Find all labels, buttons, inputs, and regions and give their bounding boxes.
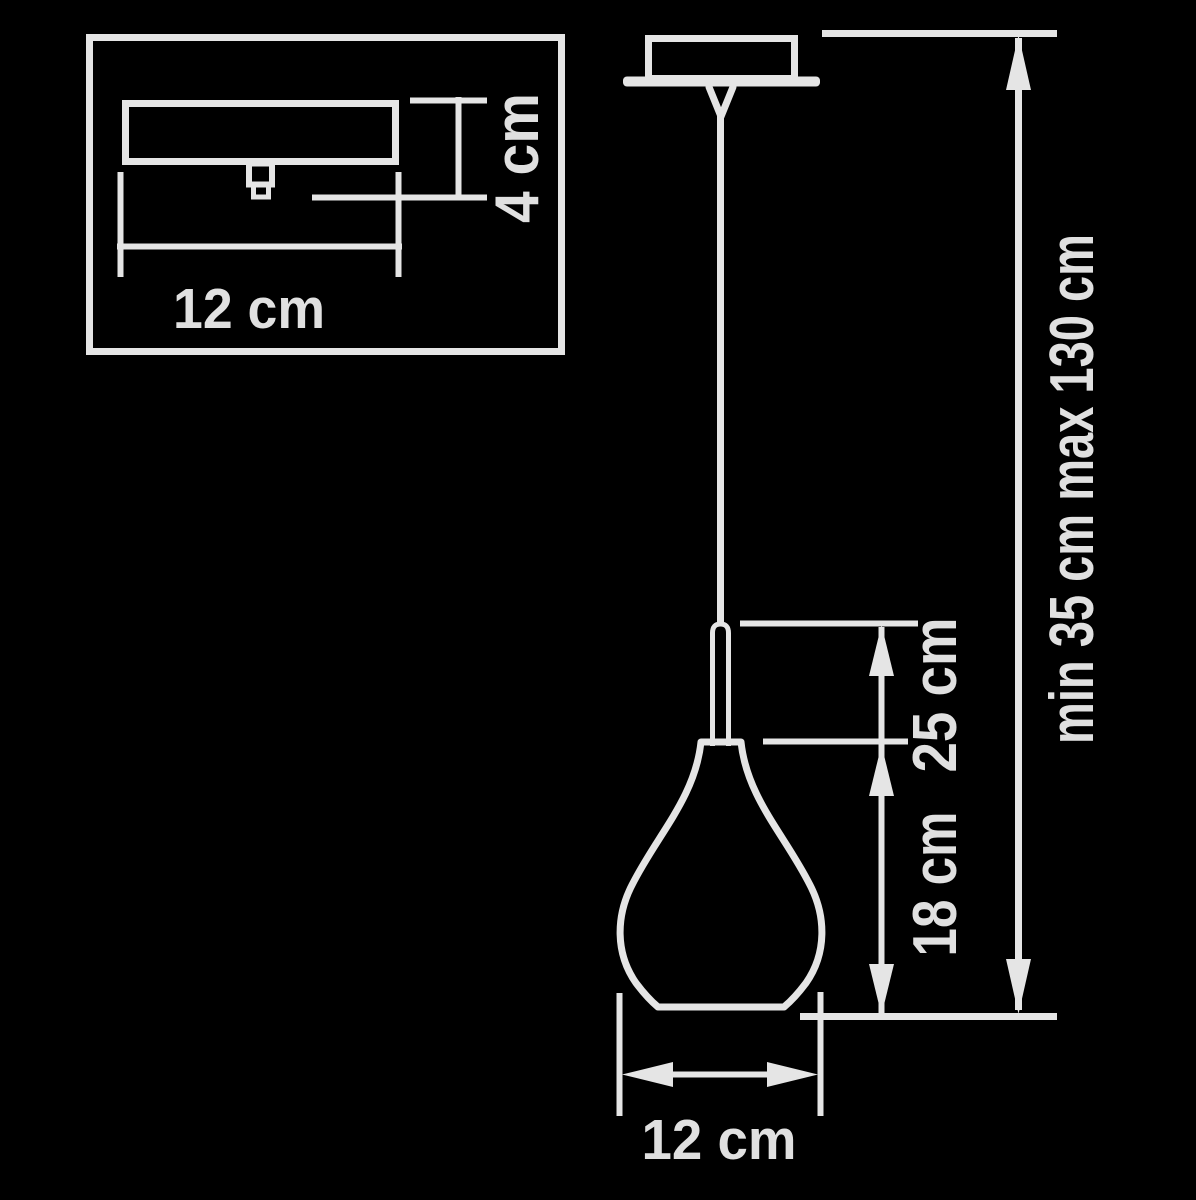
- shade-stem: [713, 624, 729, 746]
- inset-width-label: 12 cm: [173, 277, 325, 341]
- arrow-right: [767, 1062, 818, 1087]
- shade-width-label: 12 cm: [642, 1108, 797, 1172]
- arrow-up-18: [869, 745, 894, 796]
- ceiling-canopy: [649, 39, 795, 79]
- inset-detail-panel: 12 cm 4 cm: [90, 38, 562, 352]
- cord-grip: [709, 87, 733, 117]
- teardrop-shade: [620, 742, 822, 1007]
- shade-height-label: 18 cm: [901, 812, 970, 957]
- diagram-canvas: 12 cm 4 cm: [0, 0, 1196, 1200]
- canopy-flange: [623, 77, 820, 87]
- shade-width-dimension: 12 cm: [620, 992, 821, 1172]
- height-dimensions: 25 cm 18 cm: [740, 618, 970, 1016]
- mount-nipple-upper: [249, 164, 272, 185]
- arrow-down: [1006, 959, 1031, 1014]
- fixture-height-label: 25 cm: [901, 618, 970, 773]
- arrow-up-25: [869, 625, 894, 676]
- inset-height-label: 4 cm: [483, 93, 552, 223]
- arrow-down-shared: [869, 964, 894, 1015]
- arrow-up: [1006, 35, 1031, 90]
- arrow-left: [622, 1062, 673, 1087]
- canopy-side-view: [126, 104, 396, 162]
- pendant-lamp-drawing: [620, 39, 822, 1008]
- pendant-dimension-diagram: 12 cm 4 cm: [0, 0, 1196, 1200]
- suspension-range-label: min 35 cm max 130 cm: [1038, 234, 1107, 744]
- mount-nipple-lower: [254, 184, 269, 197]
